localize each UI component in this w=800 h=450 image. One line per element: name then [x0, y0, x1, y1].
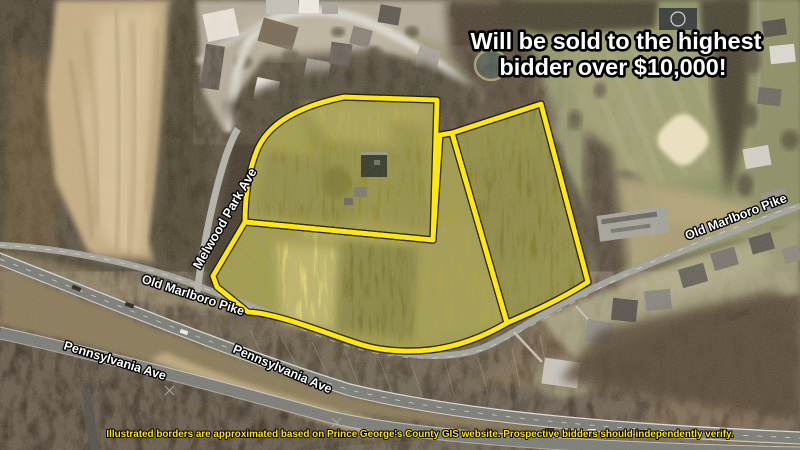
svg-text:bidder over $10,000!: bidder over $10,000! [499, 54, 726, 80]
svg-text:Illustrated borders are approx: Illustrated borders are approximated bas… [106, 429, 733, 440]
svg-text:Will be sold to the highest: Will be sold to the highest [471, 28, 762, 54]
